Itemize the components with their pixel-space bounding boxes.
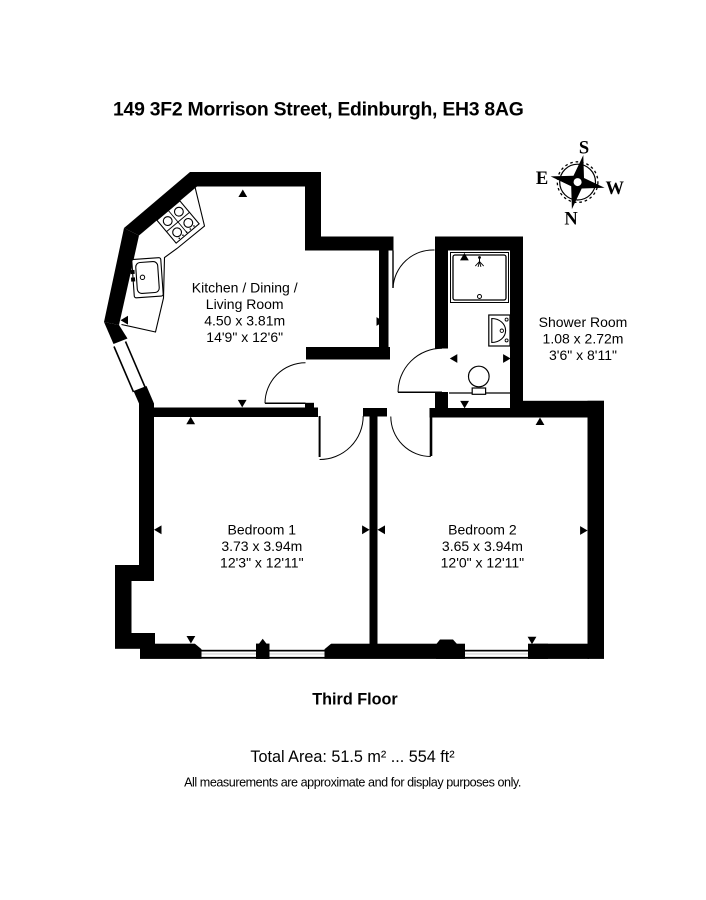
svg-text:E: E (536, 169, 548, 189)
svg-text:Kitchen / Dining /: Kitchen / Dining / (192, 280, 298, 296)
svg-text:Living Room: Living Room (206, 296, 284, 312)
svg-text:W: W (606, 179, 625, 199)
svg-text:Bedroom 2: Bedroom 2 (448, 521, 517, 537)
svg-text:3.73 x 3.94m: 3.73 x 3.94m (221, 538, 302, 554)
svg-text:149 3F2 Morrison Street, Edinb: 149 3F2 Morrison Street, Edinburgh, EH3 … (113, 99, 524, 121)
svg-text:Third Floor: Third Floor (312, 690, 398, 708)
svg-text:Total Area: 51.5 m² ... 554 ft: Total Area: 51.5 m² ... 554 ft² (250, 748, 455, 766)
svg-text:Bedroom 1: Bedroom 1 (228, 521, 297, 537)
svg-text:1.08 x 2.72m: 1.08 x 2.72m (543, 330, 624, 346)
svg-text:12'0" x 12'11": 12'0" x 12'11" (441, 554, 525, 570)
svg-text:3.65 x 3.94m: 3.65 x 3.94m (442, 538, 523, 554)
svg-text:All measurements are approxima: All measurements are approximate and for… (184, 776, 521, 790)
svg-text:3'6" x 8'11": 3'6" x 8'11" (549, 347, 617, 363)
svg-text:12'3" x 12'11": 12'3" x 12'11" (220, 554, 304, 570)
svg-text:4.50 x 3.81m: 4.50 x 3.81m (204, 313, 285, 329)
svg-text:S: S (579, 138, 589, 158)
svg-text:14'9" x 12'6": 14'9" x 12'6" (206, 329, 283, 345)
svg-text:N: N (564, 210, 578, 230)
svg-text:Shower Room: Shower Room (539, 314, 628, 330)
